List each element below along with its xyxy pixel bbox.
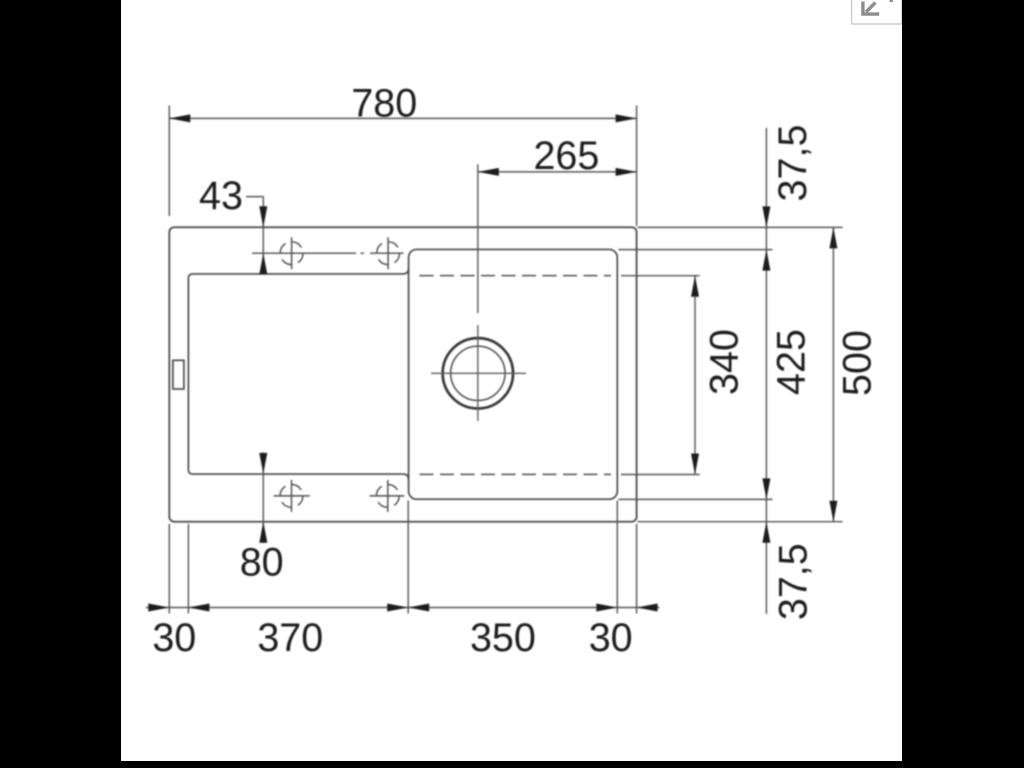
svg-text:265: 265 bbox=[533, 134, 599, 178]
svg-text:37,5: 37,5 bbox=[772, 543, 816, 620]
svg-text:425: 425 bbox=[770, 329, 814, 395]
svg-text:500: 500 bbox=[836, 330, 880, 396]
svg-text:780: 780 bbox=[351, 81, 417, 125]
svg-text:350: 350 bbox=[470, 616, 536, 660]
svg-text:80: 80 bbox=[240, 540, 284, 584]
svg-text:30: 30 bbox=[152, 616, 196, 660]
svg-text:30: 30 bbox=[589, 616, 633, 660]
svg-text:340: 340 bbox=[703, 329, 747, 395]
svg-text:37,5: 37,5 bbox=[771, 125, 815, 202]
svg-text:43: 43 bbox=[199, 174, 243, 218]
svg-text:370: 370 bbox=[257, 616, 323, 660]
